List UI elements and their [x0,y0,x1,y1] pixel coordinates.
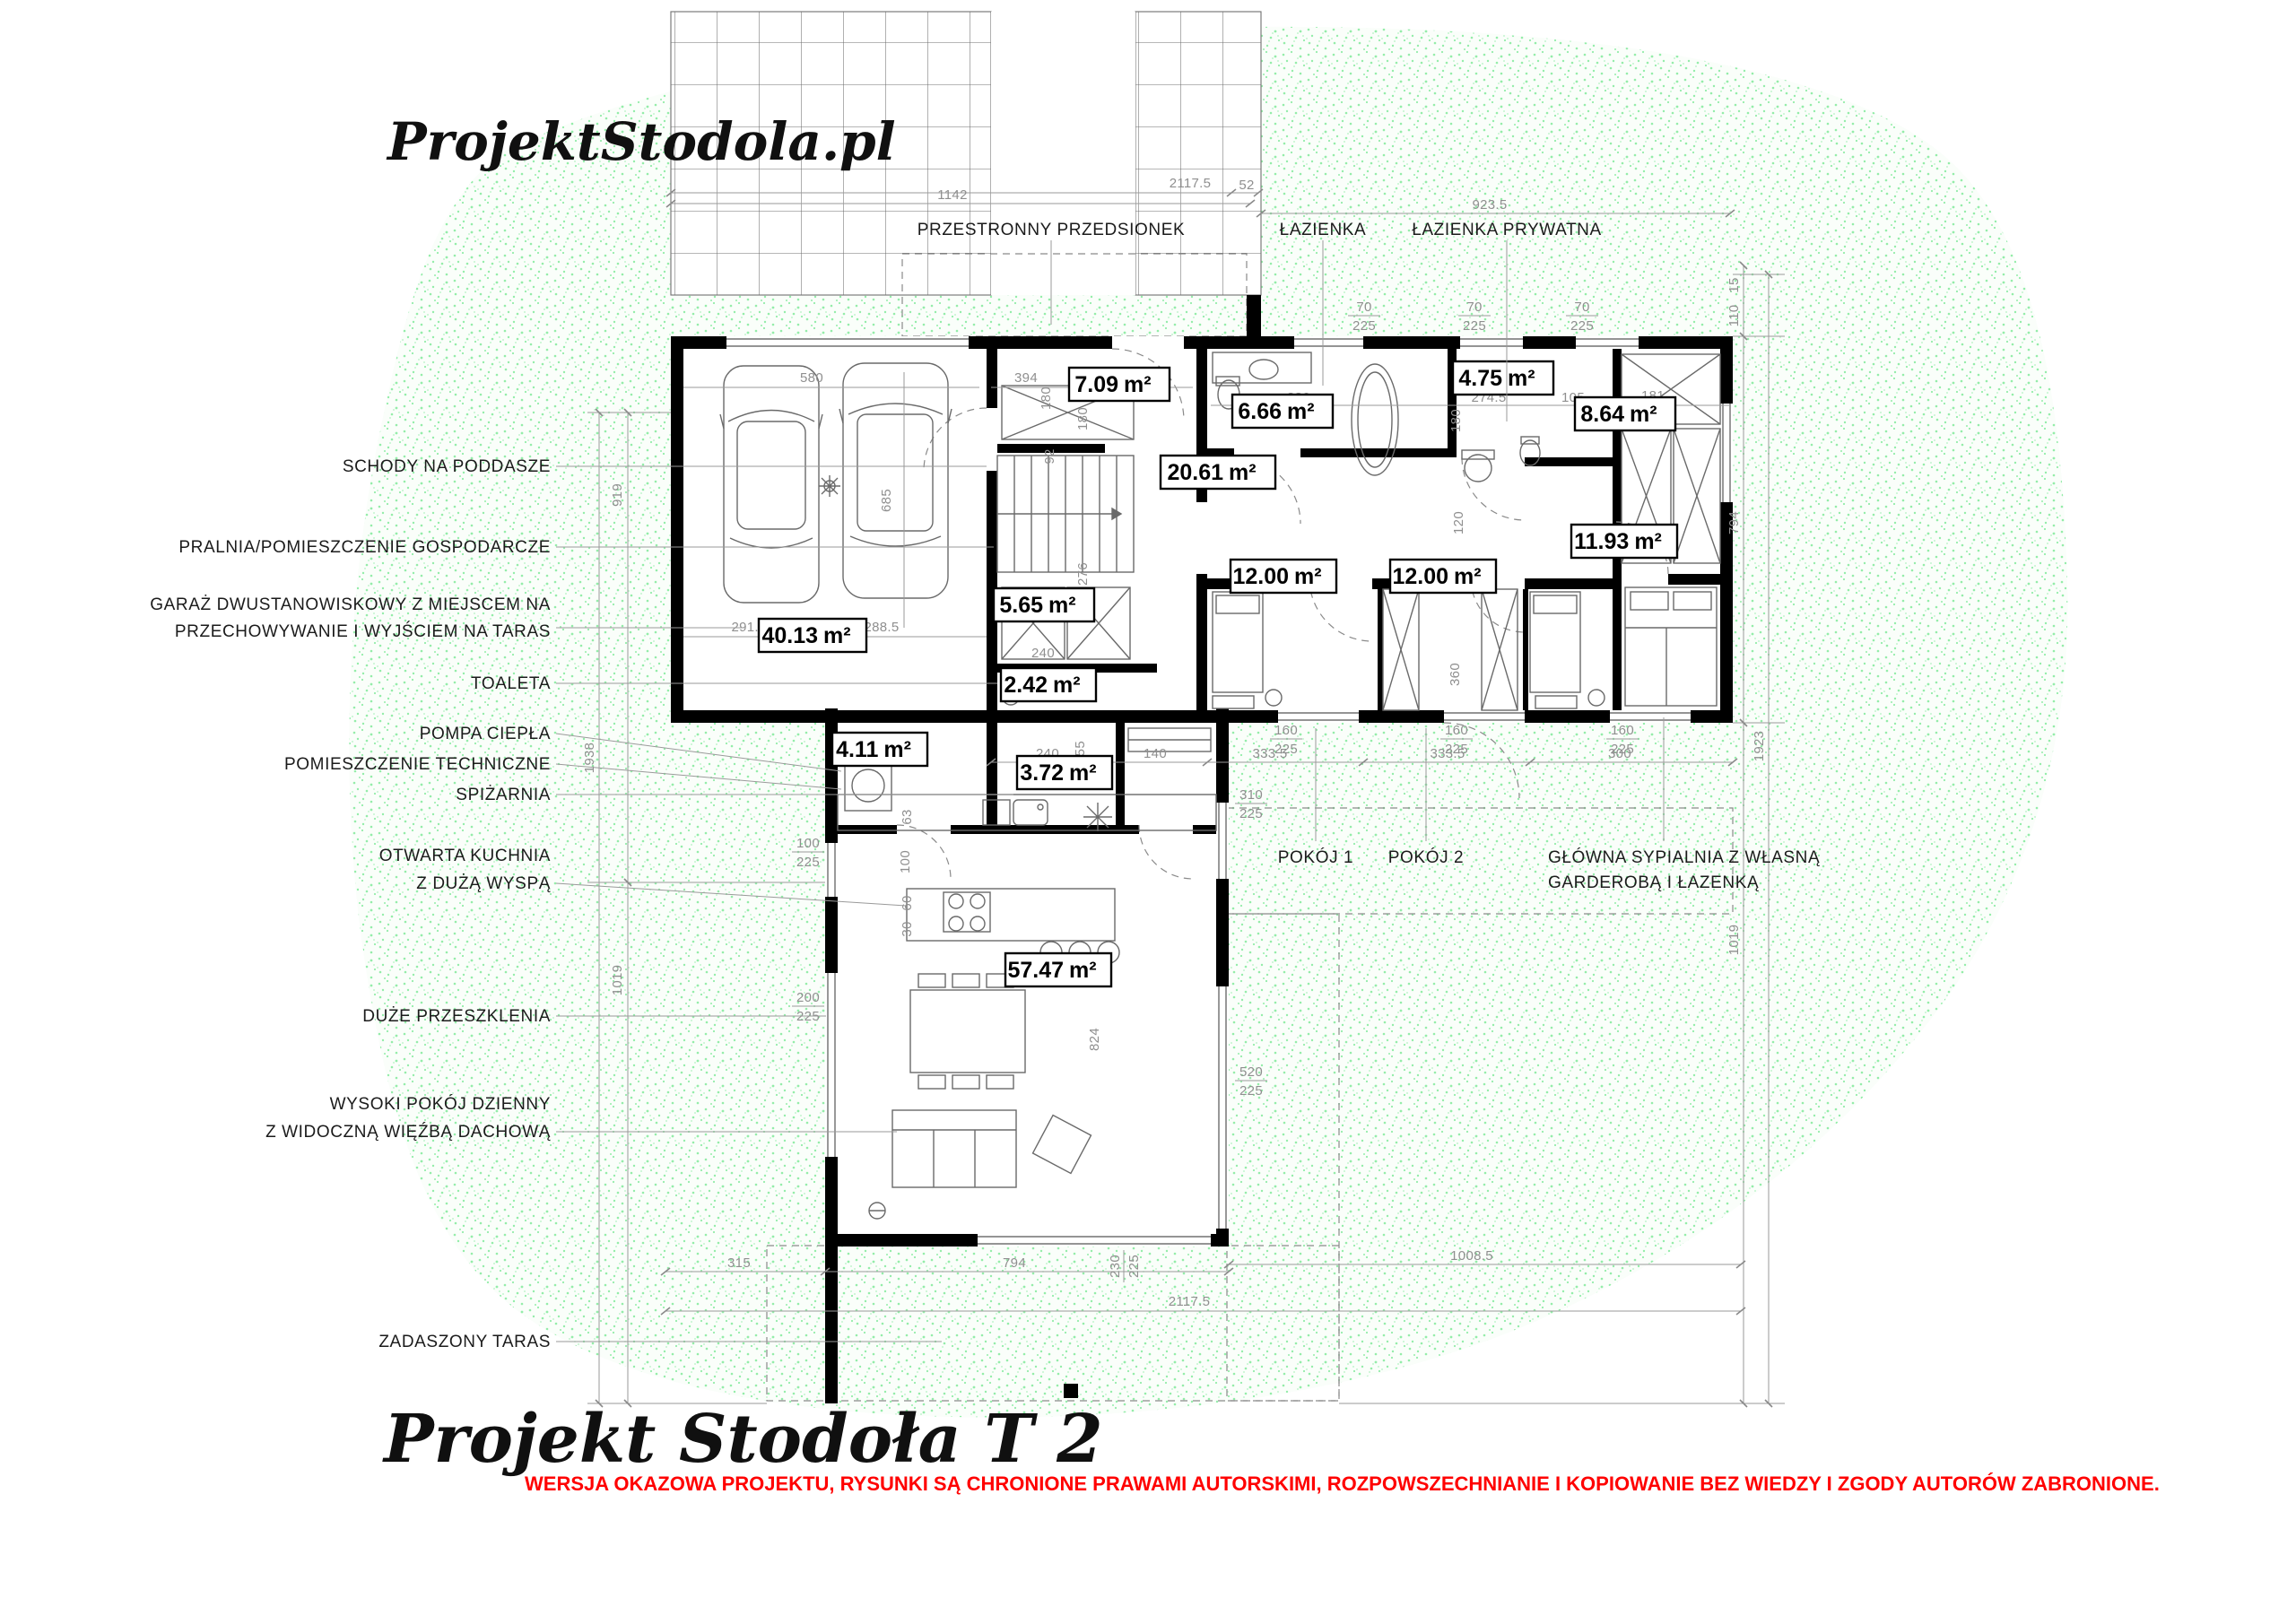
area-living: 57.47m² [1005,953,1111,986]
dim: 180 [1039,387,1054,410]
svg-text:160: 160 [1611,723,1634,738]
svg-text:40.13m²: 40.13m² [761,623,850,648]
area-garage: 40.13m² [759,619,866,652]
svg-text:12.00m²: 12.00m² [1232,564,1321,589]
label-living-1: WYSOKI POKÓJ DZIENNY [330,1094,551,1114]
dim: 794 [1726,511,1742,534]
dim: 240 [1031,646,1055,661]
area-hall: 20.61m² [1161,456,1275,489]
floor-plan-sheet: 1142 2117.5 52 923.5 580 394 291.5 288.5… [0,0,2296,1607]
svg-text:3.72m²: 3.72m² [1020,760,1096,786]
label-living-2: Z WIDOCZNĄ WIĘŹBĄ DACHOWĄ [265,1123,551,1142]
svg-text:520: 520 [1239,1064,1263,1080]
dim: 394 [1014,370,1038,386]
label-heat-pump: POMPA CIEPŁA [420,725,551,743]
copyright-warning: WERSJA OKAZOWA PROJEKTU, RYSUNKI SĄ CHRO… [525,1472,2160,1495]
area-bath: 6.66m² [1232,395,1333,428]
label-garage-2: PRZECHOWYWANIE I WYJŚCIEM NA TARAS [175,621,551,641]
svg-text:70: 70 [1466,300,1482,315]
dim: 794 [1003,1255,1026,1271]
dim: 63 [900,809,915,824]
label-bath: ŁAZIENKA [1280,221,1367,239]
dim: 120 [1451,511,1466,534]
dim: 685 [879,489,894,512]
dim: 30 [900,921,915,936]
svg-text:200: 200 [796,990,820,1005]
svg-text:4.11m²: 4.11m² [836,737,911,762]
svg-text:12.00m²: 12.00m² [1392,564,1481,589]
area-pantry: 3.72m² [1017,756,1112,789]
svg-text:100: 100 [796,836,820,851]
label-glazing: DUŻE PRZESZKLENIA [362,1007,551,1026]
dim: 52 [1239,178,1254,193]
svg-text:70: 70 [1356,300,1371,315]
area-tech: 4.11m² [832,733,927,766]
svg-text:5.65m²: 5.65m² [999,593,1075,618]
dim: 180 [1075,407,1091,430]
svg-text:225: 225 [1611,742,1634,757]
svg-text:11.93m²: 11.93m² [1574,529,1662,554]
label-laundry: PRALNIA/POMIESZCZENIE GOSPODARCZE [178,538,551,557]
area-master: 11.93m² [1571,525,1677,558]
svg-text:225: 225 [796,855,820,870]
logo-text: ProjektStodola.pl [386,111,896,172]
area-closet: 8.64m² [1575,397,1675,430]
dim: 110 [1726,305,1742,327]
dim: 180 [1448,409,1464,432]
label-kitchen-1: OTWARTA KUCHNIA [379,847,551,865]
dim: 824 [1087,1028,1102,1051]
svg-text:225: 225 [1239,1083,1263,1099]
dim: 923.5 [1472,197,1507,213]
svg-text:310: 310 [1239,787,1263,803]
dim: 288.5 [864,620,899,635]
dim: 919 [610,483,625,507]
svg-text:57.47m²: 57.47m² [1007,958,1096,983]
dim: 100 [898,850,913,873]
svg-text:230: 230 [1108,1255,1123,1278]
svg-text:160: 160 [1445,723,1468,738]
svg-text:6.66m²: 6.66m² [1238,399,1314,424]
svg-text:225: 225 [1126,1255,1142,1278]
svg-text:160: 160 [1274,723,1298,738]
dim: 360 [1448,663,1463,686]
svg-text:225: 225 [1274,742,1298,757]
dim: 1019 [1726,925,1742,956]
area-laundry: 5.65m² [994,588,1094,621]
svg-text:7.09m²: 7.09m² [1074,372,1151,397]
hood-symbol [1083,803,1112,831]
dim: 580 [800,370,823,386]
label-master-2: GARDEROBĄ I ŁAZENKĄ [1548,873,1759,892]
svg-text:4.75m²: 4.75m² [1458,366,1535,391]
area-room1: 12.00m² [1231,560,1336,593]
label-kitchen-2: Z DUŻĄ WYSPĄ [416,874,551,893]
sheet-title: Projekt Stodoła T 2 [382,1401,1103,1478]
dim: 2117.5 [1169,1294,1211,1309]
dim: 1019 [610,965,625,996]
svg-text:225: 225 [1570,318,1594,334]
dim: 15 [1726,277,1742,292]
svg-text:225: 225 [1239,806,1263,821]
label-tech: POMIESZCZENIE TECHNICZNE [284,755,551,774]
dim: 1923 [1752,731,1767,762]
label-bath-private: ŁAZIENKA PRYWATNA [1412,221,1602,239]
dim: 140 [1144,746,1167,761]
label-pantry: SPIŻARNIA [456,786,551,804]
area-wc: 2.42m² [1001,668,1096,701]
svg-text:225: 225 [1463,318,1486,334]
svg-text:225: 225 [1445,742,1468,757]
label-room1: POKÓJ 1 [1278,847,1353,867]
dim: 92 [1042,448,1057,464]
dim: 1008.5 [1450,1248,1493,1264]
driveway-grid [671,12,1261,336]
svg-text:70: 70 [1574,300,1589,315]
label-garage-1: GARAŻ DWUSTANOWISKOWY Z MIEJSCEM NA [150,595,551,614]
dim: 315 [727,1255,751,1271]
area-room2: 12.00m² [1390,560,1496,593]
dim: 60 [900,895,915,910]
dim: 1938 [582,743,597,774]
dim: 1142 [937,187,967,203]
label-room2: POKÓJ 2 [1388,847,1464,867]
label-vestibule: PRZESTRONNY PRZEDSIONEK [918,221,1186,239]
label-stairs: SCHODY NA PODDASZE [343,457,551,476]
label-terrace: ZADASZONY TARAS [378,1333,551,1351]
garage-lamp-symbol [819,475,840,497]
area-bath-private: 4.75m² [1453,361,1553,395]
svg-text:2.42m²: 2.42m² [1004,673,1080,698]
svg-text:8.64m²: 8.64m² [1580,402,1657,427]
terrace-column [1064,1384,1078,1398]
label-toilet: TOALETA [471,674,551,693]
dim: 2117.5 [1170,176,1212,191]
area-vestibule: 7.09m² [1069,368,1170,401]
label-master-1: GŁÓWNA SYPIALNIA Z WŁASNĄ [1548,847,1820,867]
svg-text:225: 225 [1352,318,1376,334]
svg-text:20.61m²: 20.61m² [1167,460,1256,485]
dim: 276 [1075,562,1091,586]
